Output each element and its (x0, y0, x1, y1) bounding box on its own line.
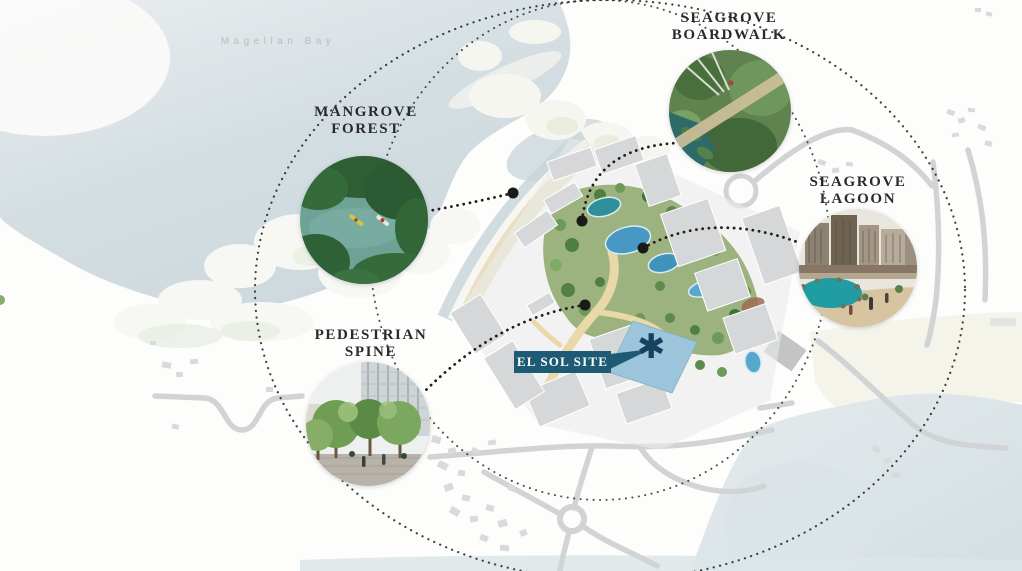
seagrove-lagoon-photo (799, 209, 917, 327)
pedestrian-spine-photo-art (306, 362, 430, 486)
label-seagrove-boardwalk: SEAGROVE BOARDWALK (624, 10, 834, 44)
seagrove-boardwalk-photo (669, 50, 791, 172)
el-sol-site-marker: ✱ (637, 330, 666, 364)
el-sol-site-tag-text: EL SOL SITE (517, 354, 608, 370)
seagrove-lagoon-photo-art (799, 209, 917, 327)
person-dot (729, 81, 734, 86)
bay-label: Magellan Bay (158, 36, 398, 47)
label-mangrove-forest: MANGROVE FOREST (261, 104, 471, 138)
label-pedestrian-spine: PEDESTRIAN SPINE (266, 327, 476, 361)
masterplan-map: Magellan Bay MANGROVE FOREST SEAGROVE BO… (0, 0, 1022, 571)
el-sol-site-tag: EL SOL SITE (514, 351, 611, 373)
mangrove-forest-photo (300, 156, 428, 284)
mangrove-forest-photo-art (300, 156, 428, 284)
label-seagrove-lagoon: SEAGROVE LAGOON (753, 174, 963, 208)
pedestrian-spine-photo (306, 362, 430, 486)
seagrove-boardwalk-photo-art (669, 50, 791, 172)
